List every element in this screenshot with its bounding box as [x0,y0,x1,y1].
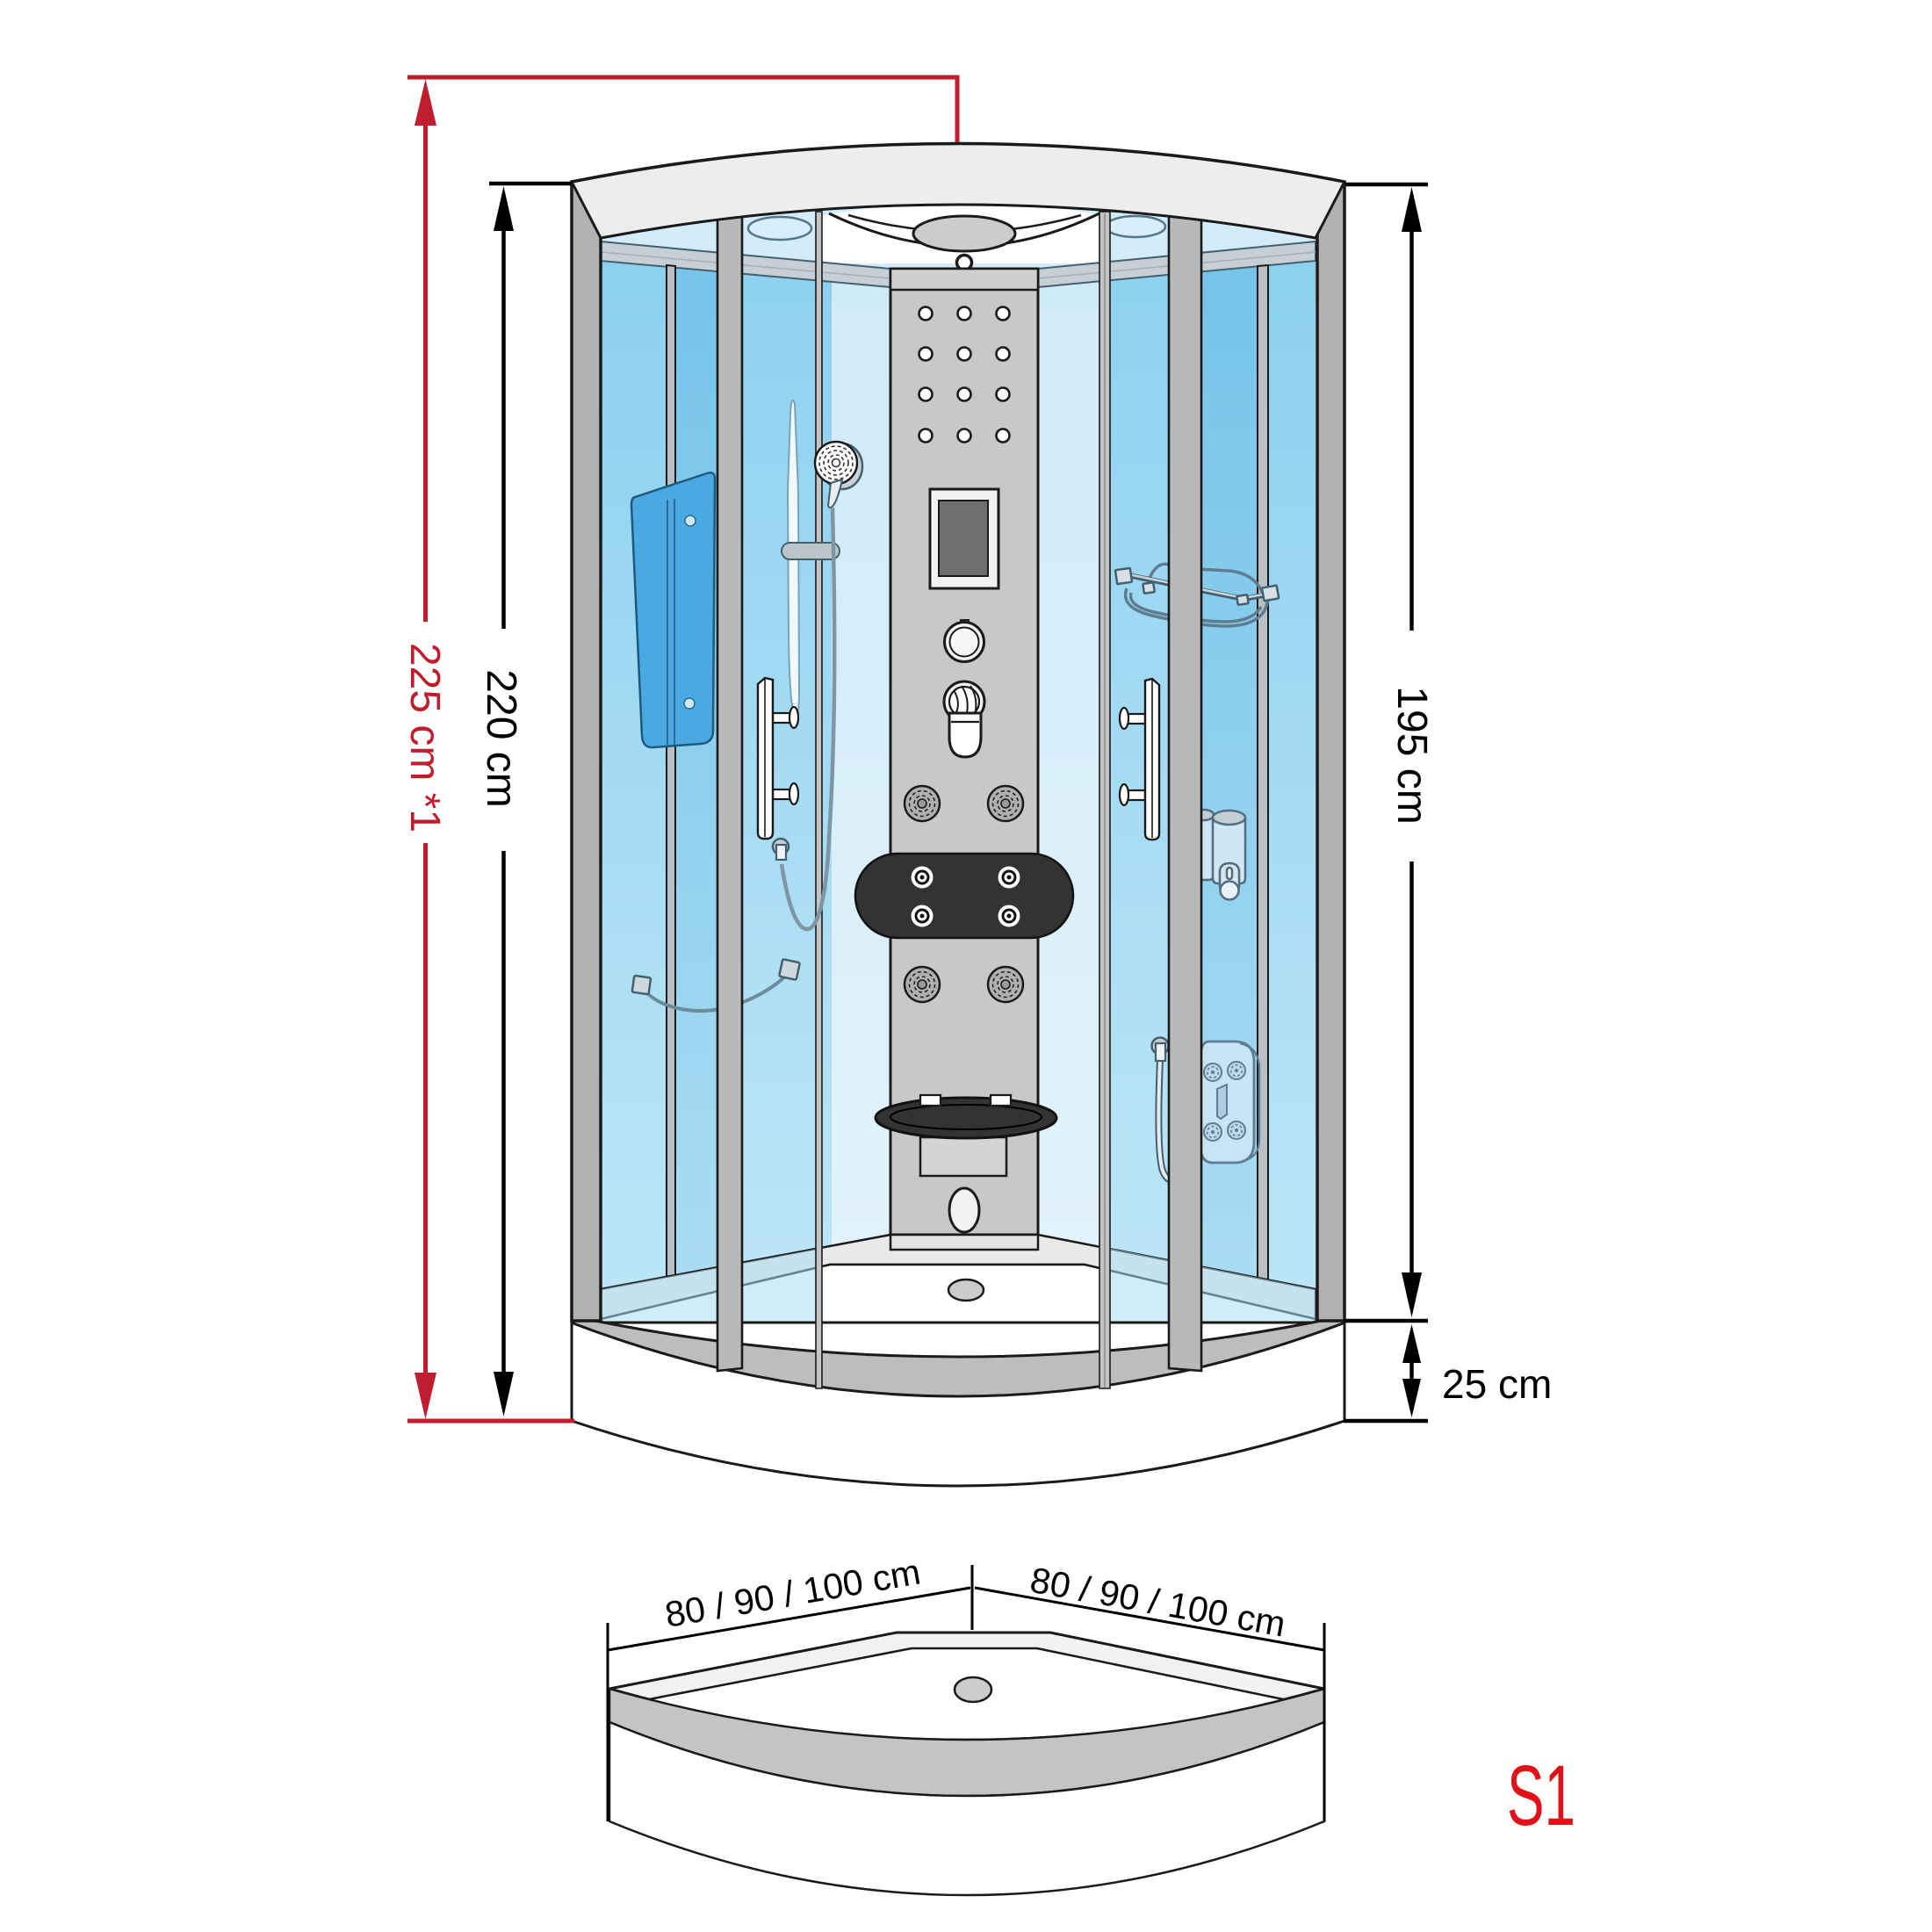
svg-text:220 cm: 220 cm [478,669,524,807]
svg-text:25 cm: 25 cm [1442,1361,1552,1407]
svg-text:225 cm *1: 225 cm *1 [401,643,448,833]
svg-text:S1: S1 [1507,1748,1575,1843]
svg-text:195 cm: 195 cm [1388,686,1435,824]
